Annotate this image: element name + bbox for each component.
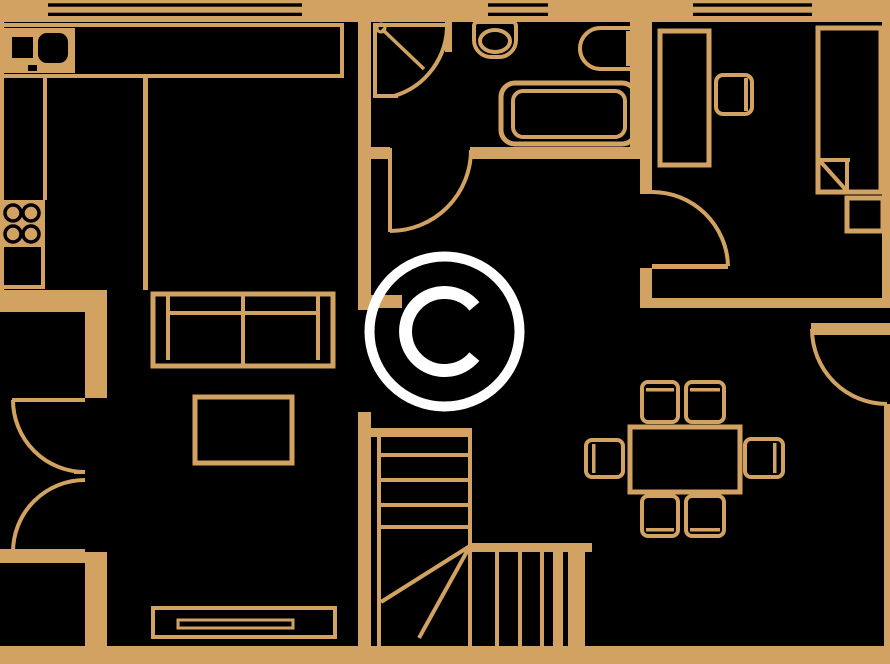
dining-chair-back <box>646 528 674 532</box>
dining-chair-back <box>646 388 674 392</box>
patio-door-leaf-top <box>12 398 85 402</box>
stairs-top-edge <box>370 428 471 437</box>
bathtub-inner <box>513 91 625 137</box>
dining-table <box>630 427 740 492</box>
sofa-arm-right <box>316 294 320 360</box>
shower-tray-left <box>373 23 377 97</box>
bed-fold-diagonal <box>820 161 846 190</box>
kitchen-floor-boundary <box>143 78 148 290</box>
bathroom-wall-stub-left <box>370 147 390 159</box>
dining-chair-back <box>773 443 777 473</box>
hall-divider-wall-lower <box>358 412 371 646</box>
shower-head <box>377 24 385 32</box>
stair-tread-lower <box>540 551 544 646</box>
patio-door-swing-top <box>13 400 85 472</box>
hall-divider-wall-upper <box>358 0 371 310</box>
patio-door-meeting-stile <box>74 470 84 474</box>
bathroom-window-pane <box>488 3 548 6</box>
bedroom-left-wall-mid <box>640 150 652 194</box>
nightstand <box>847 198 883 231</box>
copyright-watermark-ring <box>370 257 520 407</box>
stair-tread-lower <box>495 551 499 646</box>
right-exterior-wall-lower <box>884 404 890 646</box>
tv-screen <box>178 620 293 628</box>
basin-back-edge <box>626 31 630 66</box>
dining-chair-back <box>592 444 596 473</box>
stairs-lower-cap <box>470 543 592 552</box>
shower-arm <box>382 29 424 69</box>
toilet-bowl <box>480 30 510 52</box>
copyright-watermark-c <box>406 293 475 371</box>
bathroom-bottom-wall <box>470 147 652 159</box>
sink-bowl-round <box>38 33 68 63</box>
sofa-cushion-divider <box>241 294 245 366</box>
kitchen-counter-front-edge <box>2 74 344 78</box>
sink-bowl-square <box>12 37 33 58</box>
left-wall-pier-lower <box>85 552 107 646</box>
desk <box>660 31 709 165</box>
bedroom-door-leaf <box>652 264 728 269</box>
sofa-arm-left <box>166 294 170 360</box>
stair-tread <box>381 503 468 507</box>
kitchen-counter-right-edge <box>340 23 344 78</box>
left-wall-pier-upper <box>85 290 107 398</box>
coffee-table <box>195 397 292 463</box>
desk-chair-back <box>744 78 748 111</box>
stair-tread <box>381 478 468 482</box>
stair-tread-lower <box>518 551 522 646</box>
tv-console <box>153 608 335 637</box>
floor-plan-image <box>0 0 890 664</box>
stairs-rail-outer <box>568 551 585 646</box>
stairs-right-stringer <box>468 428 472 646</box>
kitchen-counter-left-front <box>43 78 47 200</box>
floor-plan-canvas <box>0 0 890 664</box>
kitchen-window-pane <box>48 3 302 6</box>
bathroom-door-swing <box>390 150 471 231</box>
dining-door-swing <box>812 329 887 404</box>
kitchen-counter-end-cap <box>0 285 45 289</box>
stair-tread <box>381 525 468 529</box>
dining-chair-back <box>690 388 720 392</box>
dining-door-leaf <box>811 323 890 335</box>
kitchen-counter-below-stove <box>41 247 45 289</box>
dining-chair <box>745 439 783 477</box>
patio-door-swing-bottom <box>13 480 85 552</box>
bathroom-window-pane <box>488 13 548 16</box>
bedroom-window-pane <box>693 3 812 6</box>
kitchen-window-pane <box>48 13 302 16</box>
bedroom-window-pane <box>693 13 812 16</box>
stairs-left-stringer <box>377 428 381 646</box>
shower-screen-arc <box>394 23 447 96</box>
bedroom-door-swing <box>652 192 728 266</box>
stairs-rail-inner <box>553 551 563 646</box>
bottom-exterior-wall <box>0 646 890 664</box>
stair-tread <box>381 453 468 457</box>
dining-top-wall <box>640 298 890 308</box>
sink-tap <box>28 65 37 71</box>
dining-chair-back <box>690 528 720 532</box>
dining-chair <box>586 440 623 477</box>
patio-door-leaf-bottom <box>12 550 85 554</box>
bathroom-door-leaf <box>388 148 392 232</box>
kitchen-counter-top-edge <box>2 23 344 27</box>
